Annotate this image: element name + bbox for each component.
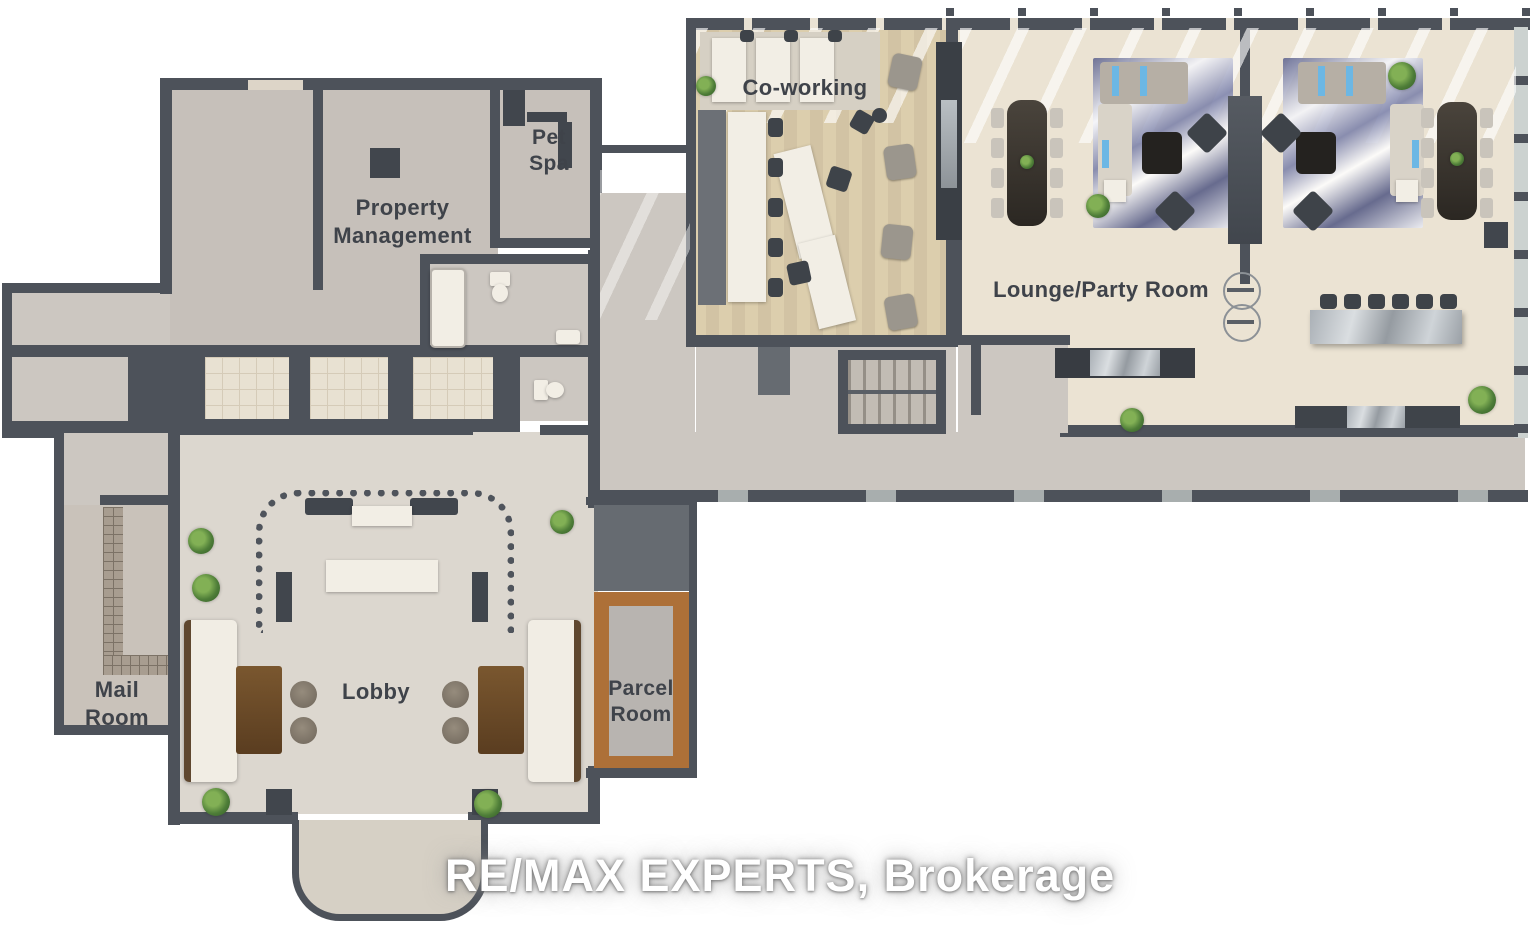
wall: [686, 335, 958, 347]
work-table: [728, 112, 766, 302]
corridor-south-wall: [600, 490, 1528, 502]
dining-chair: [991, 138, 1004, 158]
plant: [1468, 386, 1496, 414]
dining-chair: [991, 168, 1004, 188]
wall: [958, 335, 1070, 345]
dining-chair: [1421, 168, 1434, 188]
room-unlabeled-floor: [170, 88, 320, 348]
wall: [160, 78, 172, 294]
sofa-pillow: [1412, 140, 1419, 168]
stair-flight: [848, 360, 936, 390]
label-lobby: Lobby: [300, 678, 452, 706]
sofa-pillow: [1112, 66, 1119, 96]
mail-corridor-floor: [62, 430, 170, 505]
wall: [838, 424, 946, 434]
cabinet: [1405, 406, 1460, 428]
dining-chair: [1050, 108, 1063, 128]
sofa: [184, 620, 237, 782]
pet-spa-counter: [527, 112, 567, 122]
storage-room: [594, 503, 689, 591]
label-mail-room: Mail Room: [60, 676, 174, 731]
glass-partition: [1223, 304, 1261, 342]
sofa-pillow: [1140, 66, 1147, 96]
wall: [689, 497, 697, 775]
elevator-3: [413, 357, 493, 419]
glass-wall-east: [1514, 18, 1528, 438]
coffee-table: [1296, 132, 1336, 174]
dining-chair: [1480, 198, 1493, 218]
window-mullion-row: [946, 8, 1530, 16]
wall: [100, 495, 178, 505]
bar-stool: [1320, 294, 1337, 309]
dining-chair: [1421, 138, 1434, 158]
plant: [1388, 62, 1416, 90]
service-room: [758, 347, 790, 395]
toilet-bowl: [546, 382, 564, 398]
wall: [971, 345, 981, 415]
main-corridor-floor: [600, 432, 1525, 492]
column: [266, 789, 292, 815]
sofa-pillow: [1102, 140, 1109, 168]
desk-chair: [768, 158, 783, 177]
dining-chair: [1480, 108, 1493, 128]
coffee-table: [236, 666, 282, 754]
centerpiece-flowers: [1020, 155, 1034, 169]
stair-flight: [848, 394, 936, 424]
banquette: [698, 110, 726, 305]
column: [370, 148, 400, 178]
tv-screen: [941, 100, 957, 188]
plant: [696, 76, 716, 96]
desk-chair: [768, 118, 783, 137]
plant: [188, 528, 214, 554]
wall: [10, 345, 602, 357]
wall: [420, 254, 602, 264]
plant: [202, 788, 230, 816]
dining-chair: [1050, 138, 1063, 158]
lounge-chair: [880, 224, 913, 261]
light-streak: [600, 170, 690, 320]
bar-stool: [1392, 294, 1409, 309]
label-property-management: Property Management: [300, 194, 505, 249]
kitchen-counter-marble: [1090, 350, 1160, 376]
desk-chair: [740, 30, 754, 42]
centerpiece-flowers: [1450, 152, 1464, 166]
desk-chair: [768, 238, 783, 257]
bar-stool: [1368, 294, 1385, 309]
lounge-chair: [883, 293, 918, 332]
wall: [490, 238, 602, 248]
elevator-1: [205, 357, 289, 419]
wall: [936, 350, 946, 434]
ottoman: [290, 717, 317, 744]
wall: [168, 425, 180, 825]
dining-chair: [1480, 168, 1493, 188]
wall: [838, 350, 946, 360]
wall: [168, 425, 473, 435]
pet-spa-counter: [503, 90, 525, 126]
plant: [1120, 408, 1144, 432]
sofa-pillow: [1318, 66, 1325, 96]
bar-stool: [1344, 294, 1361, 309]
mailboxes: [103, 655, 169, 675]
desk-chair: [786, 260, 812, 286]
floor-plan: Property Management Pet Spa Co-working L…: [0, 0, 1536, 947]
bar-stool: [1416, 294, 1433, 309]
mailboxes: [103, 507, 123, 673]
dining-chair: [1421, 198, 1434, 218]
wall: [588, 345, 600, 433]
desk-chair: [784, 30, 798, 42]
sink: [556, 330, 580, 344]
label-pet-spa: Pet Spa: [505, 125, 593, 178]
column: [1484, 222, 1508, 248]
dining-chair: [991, 108, 1004, 128]
bar-counter: [1310, 310, 1462, 344]
dining-chair: [1480, 138, 1493, 158]
bathtub: [430, 268, 466, 348]
wall: [10, 421, 170, 433]
dining-chair: [1050, 198, 1063, 218]
label-lounge-party: Lounge/Party Room: [950, 276, 1252, 304]
brokerage-watermark: RE/MAX EXPERTS, Brokerage: [445, 850, 1105, 902]
wall: [313, 88, 323, 290]
lounge-chair: [883, 143, 917, 181]
door-gap: [248, 80, 303, 90]
side-table: [1396, 180, 1418, 202]
desk-chair: [768, 198, 783, 217]
wall: [838, 350, 848, 434]
cabinet-marble: [1347, 406, 1405, 428]
desk-chair: [828, 30, 842, 42]
reception-desk: [326, 560, 438, 592]
elevator-2: [310, 357, 388, 419]
label-parcel-room: Parcel Room: [595, 676, 687, 729]
wall: [586, 768, 697, 778]
plant: [192, 574, 220, 602]
dining-chair: [991, 198, 1004, 218]
sofa: [528, 620, 581, 782]
side-table-round: [872, 108, 887, 123]
cabinet: [1295, 406, 1347, 428]
coffee-table: [1142, 132, 1182, 174]
wall: [160, 78, 600, 90]
wall: [588, 250, 600, 355]
wall: [2, 283, 172, 293]
toilet-bowl: [492, 284, 508, 302]
plant: [474, 790, 502, 818]
bar-stool: [1440, 294, 1457, 309]
coffee-table: [478, 666, 524, 754]
plant: [550, 510, 574, 534]
wall: [594, 145, 694, 153]
plant: [1086, 194, 1110, 218]
wall: [420, 254, 430, 348]
sectional-sofa: [1298, 62, 1386, 104]
label-coworking: Co-working: [715, 74, 895, 102]
sofa-pillow: [1346, 66, 1353, 96]
double-fireplace: [1228, 96, 1262, 244]
desk-chair: [768, 278, 783, 297]
concierge-counter: [352, 506, 412, 526]
stair-landing-divider: [848, 390, 936, 394]
wall: [2, 283, 12, 438]
dining-chair: [1050, 168, 1063, 188]
dining-chair: [1421, 108, 1434, 128]
ottoman: [442, 717, 469, 744]
